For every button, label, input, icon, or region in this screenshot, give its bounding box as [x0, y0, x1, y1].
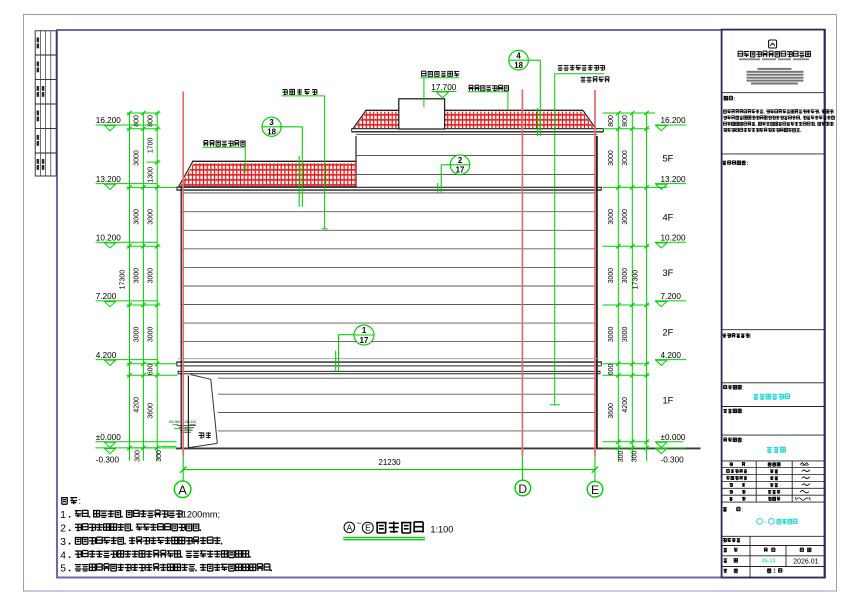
svg-text::: : [742, 507, 743, 513]
svg-text:A: A [347, 523, 353, 532]
svg-text:3000: 3000 [147, 209, 154, 225]
svg-text:E: E [365, 524, 371, 533]
svg-text:10.200: 10.200 [96, 234, 121, 243]
svg-text:3: 3 [269, 118, 274, 127]
svg-text:2: 2 [60, 524, 66, 535]
svg-text:13.200: 13.200 [96, 175, 121, 184]
svg-text:3: 3 [60, 537, 66, 548]
svg-text:600: 600 [608, 363, 615, 375]
svg-text:~: ~ [764, 519, 768, 526]
svg-text:800: 800 [622, 115, 629, 127]
svg-text:3000: 3000 [608, 150, 615, 166]
svg-text:7.200: 7.200 [661, 292, 682, 301]
svg-text:5F: 5F [663, 154, 674, 164]
svg-text::: : [742, 409, 743, 415]
svg-text:A: A [178, 482, 187, 497]
svg-text:1700: 1700 [147, 138, 154, 154]
svg-text:3000: 3000 [622, 327, 629, 343]
svg-text:~: ~ [356, 518, 361, 528]
svg-text::: : [734, 96, 736, 102]
svg-text:13.200: 13.200 [661, 175, 686, 184]
svg-text::: : [742, 438, 743, 444]
svg-text:±0.000: ±0.000 [661, 433, 686, 442]
svg-text:7.200: 7.200 [96, 292, 117, 301]
svg-text:18: 18 [514, 61, 523, 70]
svg-text:JS-13: JS-13 [761, 558, 775, 564]
svg-text:4200: 4200 [622, 397, 629, 413]
svg-text:3000: 3000 [622, 268, 629, 284]
svg-text:E: E [591, 483, 599, 497]
svg-text:16.200: 16.200 [661, 116, 686, 125]
svg-text:150.100: 150.100 [185, 420, 197, 424]
svg-text:3000: 3000 [608, 268, 615, 284]
svg-text:3000: 3000 [147, 268, 154, 284]
svg-text:5: 5 [60, 564, 66, 575]
svg-text:1: 1 [362, 326, 367, 335]
svg-text:16.200: 16.200 [96, 116, 121, 125]
svg-text:4200: 4200 [134, 397, 141, 413]
svg-text:3000: 3000 [608, 327, 615, 343]
svg-text:3000: 3000 [134, 209, 141, 225]
svg-text:-0.300: -0.300 [96, 455, 120, 464]
svg-text:4: 4 [60, 550, 66, 561]
svg-text:1F: 1F [663, 396, 674, 406]
svg-text:300: 300 [632, 450, 639, 462]
svg-text:1: 1 [773, 569, 776, 575]
svg-text:17: 17 [456, 166, 465, 175]
svg-text:4: 4 [516, 51, 521, 60]
svg-text::: : [750, 334, 752, 340]
svg-text:3600: 3600 [147, 403, 154, 419]
svg-text:17: 17 [360, 336, 369, 345]
svg-text:4F: 4F [663, 213, 674, 223]
svg-text:2026.01: 2026.01 [793, 558, 818, 565]
svg-text:10.200: 10.200 [661, 234, 686, 243]
svg-text::: : [79, 496, 82, 506]
svg-text:21230: 21230 [378, 458, 401, 467]
svg-text:1300: 1300 [147, 167, 154, 183]
svg-text:2: 2 [458, 156, 463, 165]
svg-text:4.200: 4.200 [96, 351, 117, 360]
svg-text:3F: 3F [663, 268, 674, 278]
svg-text:2F: 2F [663, 328, 674, 338]
svg-text:300: 300 [618, 450, 625, 462]
svg-text:1200mm;: 1200mm; [182, 510, 220, 520]
svg-text:3000: 3000 [622, 150, 629, 166]
svg-text:17300: 17300 [633, 270, 640, 290]
svg-text:D: D [518, 482, 527, 496]
svg-text::: : [742, 385, 743, 391]
svg-text:1: 1 [60, 510, 66, 521]
svg-text::: : [747, 161, 749, 167]
svg-text:3000: 3000 [134, 268, 141, 284]
svg-text:800: 800 [608, 115, 615, 127]
svg-text:17.700: 17.700 [431, 83, 456, 92]
svg-text:-0.300: -0.300 [661, 455, 685, 464]
svg-text:1:100: 1:100 [430, 524, 453, 534]
svg-text:3000: 3000 [147, 327, 154, 343]
svg-text:300: 300 [156, 450, 163, 462]
svg-text:17300: 17300 [120, 270, 127, 290]
svg-text:600: 600 [147, 363, 154, 375]
svg-text:3000: 3000 [134, 150, 141, 166]
svg-text:3000: 3000 [608, 209, 615, 225]
svg-text:3600: 3600 [608, 403, 615, 419]
svg-text:300: 300 [135, 450, 142, 462]
svg-text:4.200: 4.200 [661, 351, 682, 360]
svg-text:±0.000: ±0.000 [96, 433, 121, 442]
svg-text:100.050: 100.050 [169, 420, 181, 424]
svg-text:3000: 3000 [134, 327, 141, 343]
svg-text:18: 18 [267, 128, 276, 137]
svg-text:3000: 3000 [622, 209, 629, 225]
